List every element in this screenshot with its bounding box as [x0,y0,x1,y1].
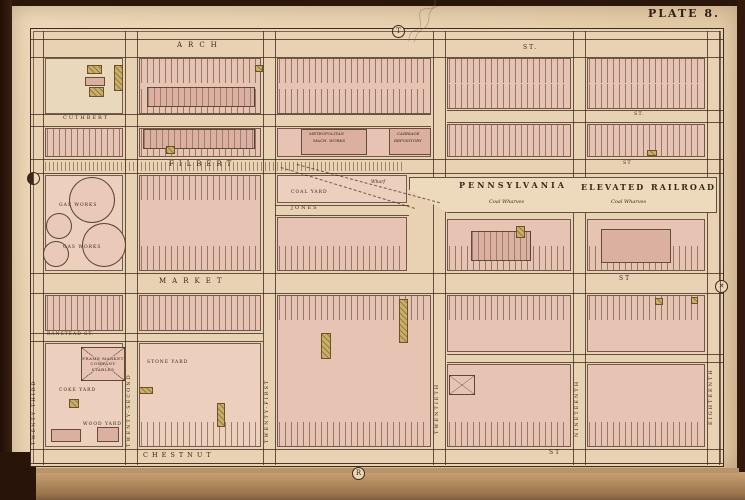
street-line [31,126,431,127]
rowhouse-strip [449,422,569,446]
map-label: Coal Wharves [611,200,646,205]
building-label: STABLES [92,367,115,373]
city-block [447,124,571,157]
rowhouse-strip [47,129,121,156]
building [51,429,81,442]
map-label: ST. [523,45,538,51]
city-block [587,58,705,109]
wood-frame-building [87,65,102,74]
rowhouse-strip [279,422,429,446]
map-label: JONES [291,206,319,211]
wood-frame-building [655,298,663,305]
rowhouse-strip [141,59,259,83]
street-name-vertical: NINETEENTH [575,353,580,437]
wood-frame-building [217,403,225,427]
wood-frame-building [647,150,657,156]
map-label: ST [619,276,631,282]
margin-marker-dot [27,172,40,185]
map-label: ST. [634,112,645,117]
city-block [447,295,571,352]
map-label: RAILROAD [651,183,716,191]
street-line [31,293,723,294]
city-block [139,295,261,331]
rowhouse-strip [589,84,703,108]
street-line [31,273,723,274]
margin-marker-r: R [352,467,365,480]
city-block [45,58,123,114]
building [85,77,105,86]
map-label: Coal Wharves [489,200,524,205]
street-line [31,39,723,40]
rowhouse-strip [141,176,259,200]
city-block [447,58,571,109]
map-label: METROPOLITAN [309,132,344,136]
rowhouse-strip [589,125,703,156]
gas-holder-tank [69,177,115,223]
map-label: GAS WORKS [63,246,102,251]
wood-frame-building [69,399,79,408]
rowhouse-strip [141,246,259,270]
atlas-photo: PLATE 8. FRAME MARKETCOMPANYSTABLESARCHS… [0,0,745,500]
table-surface [0,472,745,500]
street-line [585,31,586,465]
street-line [31,449,723,450]
building [147,87,255,107]
wood-frame-building [114,65,123,91]
wood-frame-building [139,387,153,394]
city-block [587,295,705,352]
margin-marker-t: T [392,25,405,38]
crossed-building [449,375,475,395]
rowhouse-strip [589,422,703,446]
map-label: CUTHBERT [63,116,109,121]
wood-frame-building [321,333,331,359]
street-line [31,341,263,342]
handwritten-inscription [398,0,488,42]
street-name-vertical: TWENTY-THIRD [32,353,37,445]
building [97,427,119,442]
photo-frame-top [0,0,745,6]
street-line [275,31,276,465]
street-name-vertical: EIGHTEENTH [709,339,714,425]
building [601,229,671,263]
street-line [31,463,723,464]
map-label: REPOSITORY [394,139,422,143]
map-label: RANSTEAD ST. [47,333,94,338]
wood-frame-building [691,297,698,304]
street-line [719,31,720,465]
wood-frame-building [255,65,263,72]
city-block [277,217,407,271]
wood-frame-building [166,146,175,154]
rowhouse-strip [589,296,703,320]
street-line [31,159,723,160]
wood-frame-building [399,299,408,343]
map-label: CHESTNUT [143,452,215,459]
map-label: CARRIAGE [397,132,420,136]
map-label: GAS WORKS [59,204,98,209]
building [143,129,255,149]
map-label: ARCH [177,42,223,49]
city-block [139,175,261,271]
street-line [275,215,409,216]
rowhouse-strip [449,84,569,108]
map-label: Wharf [371,181,385,186]
map-label: MARKET [159,278,228,285]
rowhouse-strip [449,296,569,320]
street-line [445,31,446,465]
street-name-vertical: TWENTY-SECOND [127,347,132,447]
street-line [137,31,138,465]
map-label: ELEVATED [581,183,645,191]
street-name-vertical: TWENTY-FIRST [265,351,270,443]
photo-frame-left [0,0,12,500]
map-label: STONE YARD [147,361,188,366]
rowhouse-strip [141,296,259,330]
rowhouse-strip [279,246,405,270]
map-label: COAL YARD [291,191,328,196]
rowhouse-strip [47,296,121,330]
map-label: MACH. WORKS [313,139,345,143]
city-block [45,295,123,331]
margin-marker-✕: ✕ [715,280,728,293]
map-label: ST [549,450,561,456]
page-bottom-edge [12,468,739,473]
rowhouse-strip [449,59,569,83]
gas-holder-tank [46,213,72,239]
city-block [587,124,705,157]
wood-frame-building [516,226,525,238]
plate-label: PLATE 8. [648,7,720,20]
street-line [31,173,723,174]
map-label: FILBERT [169,161,236,168]
rowhouse-strip [449,125,569,156]
rowhouse-strip [279,89,429,113]
rowhouse-strip [279,59,429,83]
rowhouse-strip [589,59,703,83]
photo-frame-right [737,0,745,500]
map-label: WOOD YARD [83,423,122,428]
street-name-vertical: TWENTIETH [435,356,440,434]
map-label: PENNSYLVANIA [459,181,567,189]
crossed-building: FRAME MARKETCOMPANYSTABLES [81,347,125,381]
map-face: FRAME MARKETCOMPANYSTABLESARCHST.CUTHBER… [30,28,724,467]
map-label: ST [623,161,632,166]
map-label: COKE YARD [59,389,96,394]
rowhouse-strip [141,422,259,446]
city-block [587,364,705,447]
city-block [139,343,261,447]
city-block [45,128,123,157]
city-block [277,58,431,114]
wood-frame-building [89,87,104,97]
